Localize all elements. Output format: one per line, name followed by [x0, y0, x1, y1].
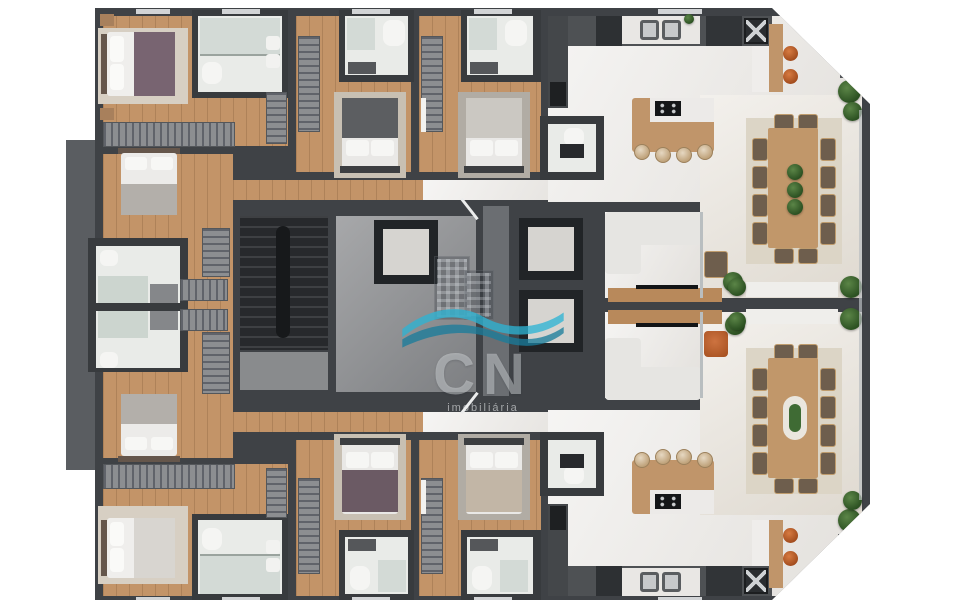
core-elevator-cab: [383, 229, 429, 275]
bed-d-duvet: [466, 98, 522, 138]
sofa-top-main: [605, 212, 701, 245]
terrace-bottom-chair6: [752, 452, 768, 475]
bed-d2-pillow1: [470, 452, 493, 468]
kitchen-bottom-stool2: [655, 449, 671, 465]
glass-wall-bottom: [700, 312, 703, 398]
kitchen-top-cabinet-box2: [706, 16, 742, 46]
terrace-top-table-plant1: [787, 164, 803, 180]
midbath-lower-shower: [98, 311, 148, 338]
bath-d-toilet: [505, 20, 527, 46]
bath-d2-toilet: [472, 566, 492, 590]
elevator2-cab: [528, 299, 574, 343]
bath-d2-shower: [500, 560, 528, 592]
terrace-top-chair7: [820, 138, 836, 161]
bed-b2-headboard: [118, 456, 180, 462]
terrace-top-chair8: [820, 166, 836, 189]
window-bottom2: [222, 597, 260, 602]
terrace-top-chair5: [752, 194, 768, 217]
kitchen-bottom-sink2: [662, 572, 681, 592]
bed-a2-pillow2: [110, 548, 124, 572]
bed-c2-pillow2: [371, 452, 394, 468]
kitchen-top-cooktop: [655, 101, 681, 116]
elevator1-cab: [528, 227, 574, 271]
midbath-lower-vanity: [150, 311, 178, 330]
bed-b2-pillow2: [151, 437, 173, 450]
bed-d-headboard: [464, 166, 524, 173]
terrace-bottom-chair10: [820, 452, 836, 475]
bar-bottom-stool1: [783, 528, 798, 543]
armchair-top: [704, 251, 728, 278]
window-top2: [222, 9, 260, 14]
kitchen-top-sink1: [640, 20, 659, 40]
terrace-top-bush1: [838, 80, 861, 103]
bed-b-pillow1: [125, 157, 147, 170]
bath-c2-toilet: [350, 566, 370, 590]
bath-d2-vanity: [470, 539, 498, 551]
bed-b-duvet: [121, 184, 177, 215]
bar-top-stool1: [783, 46, 798, 61]
terrace-top-chair11: [774, 248, 794, 264]
terrace-top-chair9: [820, 194, 836, 217]
kitchen-top-burner: [744, 18, 768, 44]
bath-d-shower: [469, 18, 497, 50]
bar-top-counter: [752, 46, 769, 92]
bed-d-pillow1: [470, 140, 493, 156]
terrace-top-chair10: [820, 222, 836, 245]
bath-c2-vanity: [348, 539, 376, 551]
wardrobe-v4b: [266, 468, 287, 518]
midbath-upper-shower: [98, 276, 148, 303]
terrace-top-table-plant3: [787, 199, 803, 215]
kitchen-bottom-cooktop: [655, 494, 681, 509]
kitchen-top-stool3: [676, 147, 692, 163]
bed-c2-headboard: [340, 438, 400, 445]
wardrobe-v4: [266, 92, 287, 144]
window-top4: [474, 9, 512, 14]
sofa-bottom-main: [605, 367, 701, 400]
wardrobe-v3b: [202, 332, 230, 394]
bed-d2-duvet: [466, 470, 522, 512]
bed-c-duvet: [342, 98, 398, 138]
bath-a2-toilet: [202, 528, 222, 550]
kitchen-top-counter-plant: [684, 14, 694, 24]
bath-a-toilet: [202, 62, 222, 84]
stair-rail: [276, 226, 290, 338]
bar-top: [769, 24, 783, 92]
shoe-rack1: [180, 279, 228, 301]
floor-plan-image: CN imobiliária: [0, 0, 960, 612]
bed-a-duvet: [134, 32, 175, 96]
kitchen-bottom-oven: [550, 506, 566, 530]
door-leaf-suites-top: [421, 98, 426, 132]
bath-a-sink2: [266, 54, 280, 68]
window-bottom4: [474, 597, 512, 602]
wardrobe-v1: [298, 36, 320, 132]
building: [0, 0, 960, 612]
divider-counter-top: [746, 282, 838, 297]
stair-landing: [240, 352, 328, 390]
window-bottom1: [136, 597, 170, 602]
bed-b-pillow2: [151, 157, 173, 170]
terrace-top-chair6: [752, 222, 768, 245]
tv-bottom: [636, 323, 698, 327]
terrace-bottom-chair8: [820, 396, 836, 419]
bed-b2-duvet: [121, 394, 177, 424]
kitchen-bottom-cabinet-box1: [596, 566, 622, 596]
bath-c-toilet: [383, 20, 405, 46]
window-top3: [352, 9, 390, 14]
kitchen-top-stool1: [634, 144, 650, 160]
bar-bottom: [769, 520, 783, 588]
bath-d-vanity: [470, 62, 498, 74]
kitchen-bottom-stool3: [676, 449, 692, 465]
divider-counter-bottom: [746, 309, 838, 324]
tv-console-bottom: [608, 310, 722, 324]
tv-top: [636, 285, 698, 289]
kitchen-bottom-stool4: [697, 452, 713, 468]
powder-bottom-toilet: [564, 466, 584, 484]
door-leaf-suites-bottom: [421, 480, 426, 514]
wardrobe-v3: [202, 228, 230, 277]
tv-console-top: [608, 288, 722, 302]
powder-top-vanity: [560, 144, 584, 158]
terrace-bottom-chair11: [774, 478, 794, 494]
window-bottom3: [352, 597, 390, 602]
bed-a-nightstand1: [100, 14, 114, 26]
bed-d2-pillow2: [495, 452, 518, 468]
bed-c-pillow2: [371, 140, 394, 156]
midbath-lower-toilet: [100, 352, 118, 368]
bath-c-shower: [347, 18, 375, 50]
terrace-bottom-chair4: [752, 396, 768, 419]
terrace-bottom-chair12: [798, 478, 818, 494]
bed-a2-duvet: [134, 518, 175, 578]
bar-bottom-stool2: [783, 551, 798, 566]
corridor-top: [233, 180, 423, 200]
elevator-wall-panel: [483, 206, 509, 396]
terrace-top-chair4: [752, 166, 768, 189]
kitchen-bottom-burner: [744, 568, 768, 594]
bar-top-stool2: [783, 69, 798, 84]
bed-c-pillow1: [346, 140, 369, 156]
bed-a-pillow2: [110, 64, 124, 90]
wardrobe-h1b: [103, 464, 235, 489]
window-top5: [658, 9, 702, 14]
bed-a-nightstand2: [100, 108, 114, 120]
window-bottom5: [658, 597, 702, 602]
terrace-bottom-centerpiece-green: [789, 404, 801, 432]
shoe-rack2: [180, 309, 228, 331]
bath-c-vanity: [348, 62, 376, 74]
midbath-upper-toilet: [100, 250, 118, 266]
bed-a-pillow1: [110, 36, 124, 62]
bed-c2-duvet: [342, 470, 398, 512]
bath-a2-glass: [200, 554, 280, 556]
terrace-bottom-chair5: [752, 424, 768, 447]
bed-d2-headboard: [464, 438, 524, 445]
glass-railing-right: [859, 110, 862, 500]
door-swing-entry-bottom: [460, 392, 478, 414]
glass-wall-top: [700, 212, 703, 298]
kitchen-top-stool4: [697, 144, 713, 160]
terrace-top-table-plant2: [787, 182, 803, 198]
terrace-top-chair12: [798, 248, 818, 264]
kitchen-top-stool2: [655, 147, 671, 163]
divider-plant3: [728, 312, 746, 330]
armchair-bottom: [704, 331, 728, 357]
divider-plant1: [728, 278, 746, 296]
bed-a2-pillow1: [110, 522, 124, 546]
bed-c2-pillow1: [346, 452, 369, 468]
bath-a-sink1: [266, 36, 280, 50]
kitchen-bottom-counter-white: [622, 568, 700, 596]
planter-top: [840, 58, 868, 78]
bed-d-pillow2: [495, 140, 518, 156]
bed-b2-pillow1: [125, 437, 147, 450]
wardrobe-h1: [103, 122, 235, 147]
bath-c2-shower: [378, 560, 406, 592]
kitchen-bottom-sink1: [640, 572, 659, 592]
window-top1: [136, 9, 170, 14]
kitchen-bottom-stool1: [634, 452, 650, 468]
bed-c-headboard: [340, 166, 400, 173]
terrace-bottom-chair7: [820, 368, 836, 391]
terrace-top-chair3: [752, 138, 768, 161]
corridor-bottom: [233, 412, 423, 432]
bath-a2-sink2: [266, 558, 280, 572]
terrace-bottom-chair9: [820, 424, 836, 447]
planter-bottom: [838, 534, 866, 552]
wardrobe-v1b: [298, 478, 320, 574]
powder-bottom-vanity: [560, 454, 584, 468]
kitchen-top-cabinet-box1: [596, 16, 622, 46]
kitchen-top-sink2: [662, 20, 681, 40]
terrace-bottom-chair3: [752, 368, 768, 391]
kitchen-top-oven: [550, 82, 566, 106]
midbath-upper-vanity: [150, 284, 178, 303]
terrace-bottom-bush1: [838, 509, 861, 532]
bar-bottom-counter: [752, 520, 769, 566]
kitchen-bottom-cabinet-box2: [706, 566, 742, 596]
bath-a2-sink1: [266, 540, 280, 554]
